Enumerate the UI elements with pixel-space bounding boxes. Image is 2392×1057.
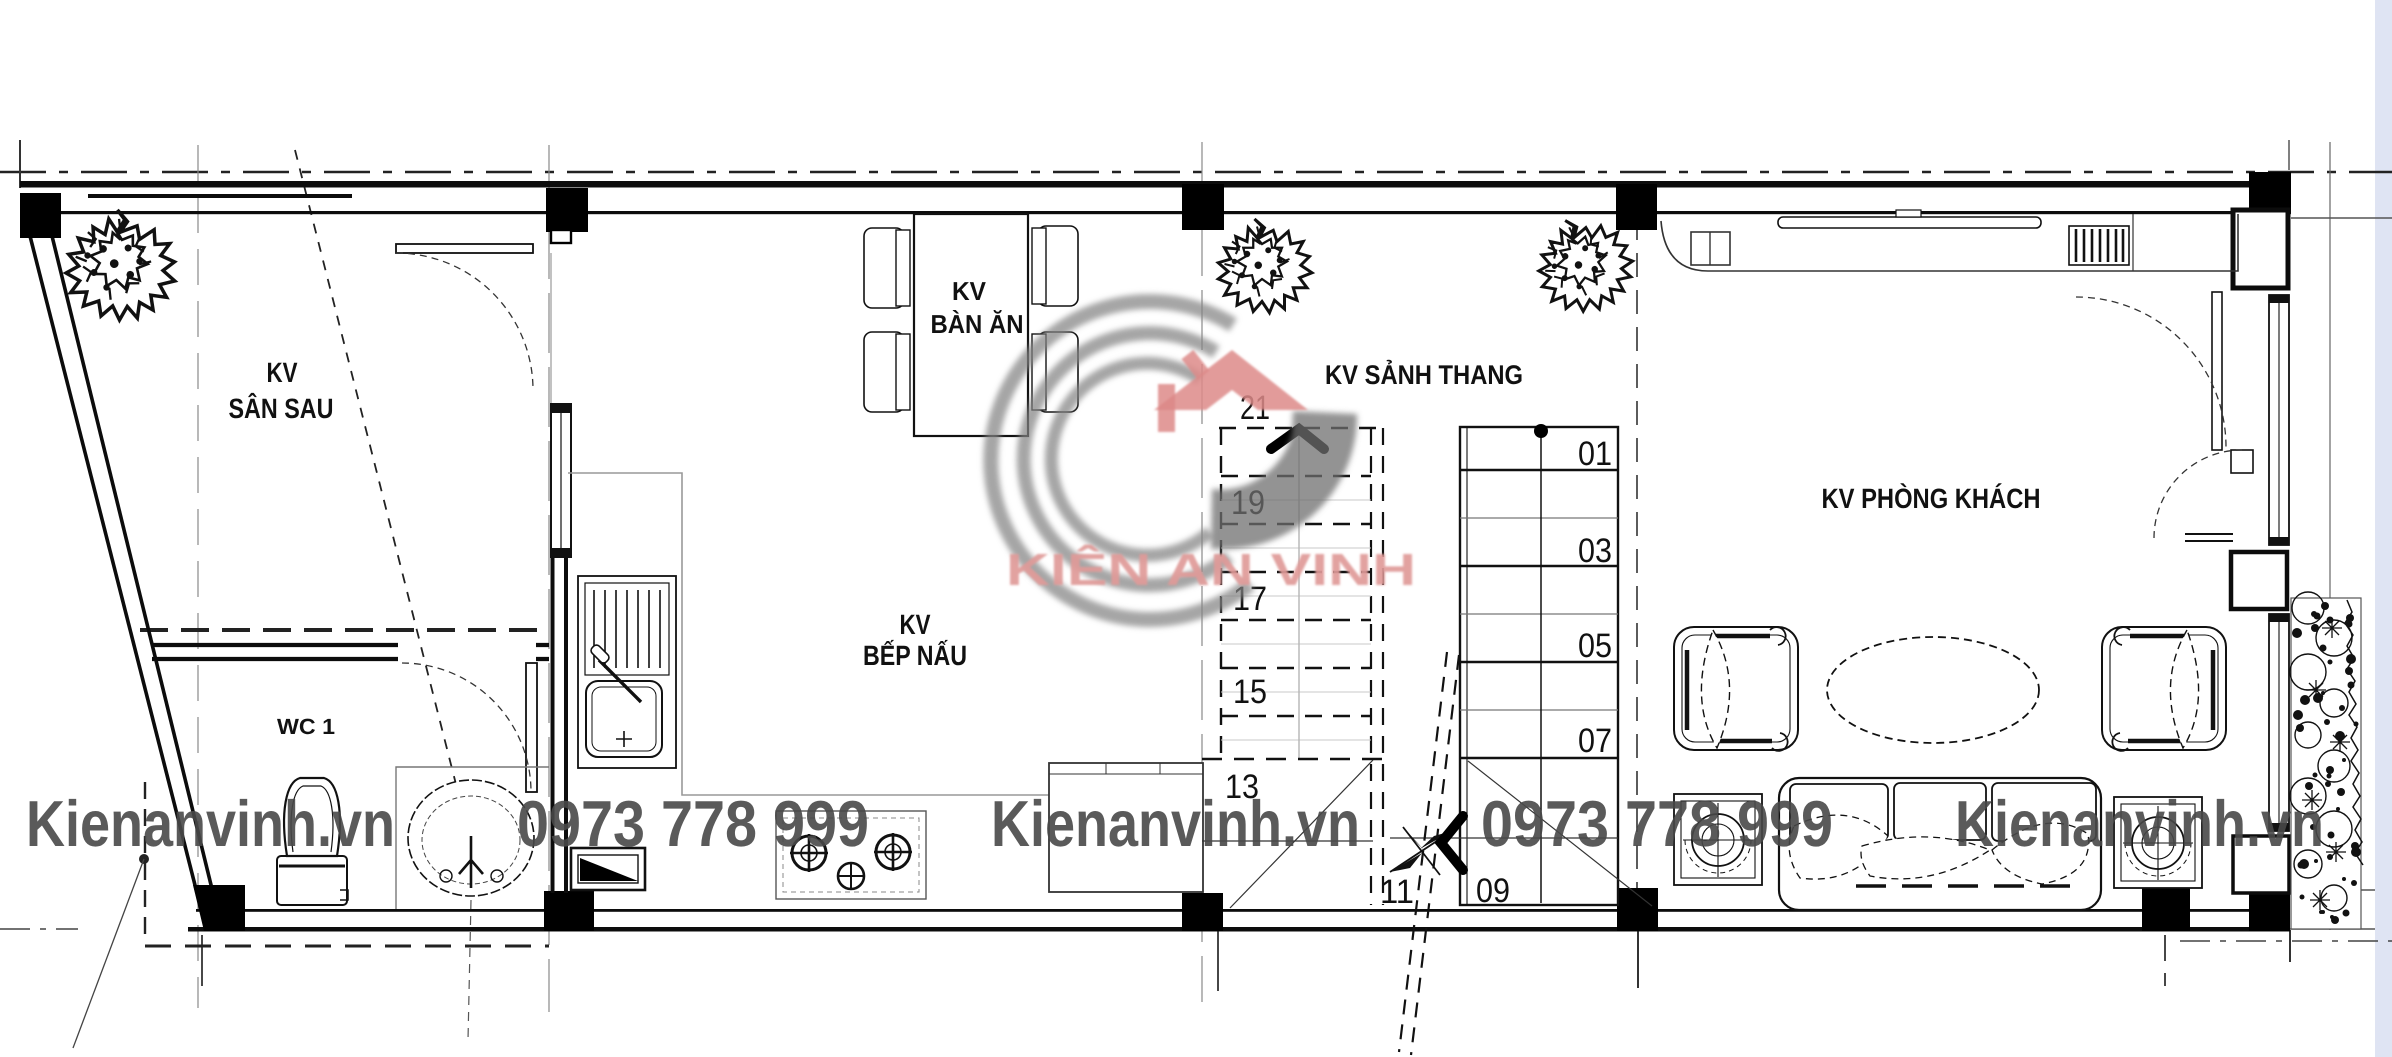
svg-text:KV PHÒNG KHÁCH: KV PHÒNG KHÁCH (1822, 483, 2041, 514)
svg-text:Kienanvinh.vn: Kienanvinh.vn (991, 787, 1360, 860)
svg-text:0973 778 999: 0973 778 999 (1481, 787, 1833, 860)
svg-text:BẾP NẤU: BẾP NẤU (863, 639, 967, 671)
svg-text:KV: KV (900, 609, 931, 640)
svg-text:KIÊN AN VINH: KIÊN AN VINH (1006, 544, 1416, 595)
svg-text:15: 15 (1233, 673, 1267, 711)
svg-text:0973 778 999: 0973 778 999 (517, 787, 869, 860)
svg-text:Kienanvinh.vn: Kienanvinh.vn (26, 787, 395, 860)
svg-text:BÀN ĂN: BÀN ĂN (931, 309, 1024, 339)
svg-text:KV SẢNH THANG: KV SẢNH THANG (1325, 359, 1523, 390)
svg-text:11: 11 (1380, 873, 1414, 911)
svg-text:07: 07 (1578, 722, 1612, 760)
svg-text:KV: KV (952, 276, 987, 306)
svg-text:01: 01 (1578, 435, 1612, 473)
svg-text:WC 1: WC 1 (277, 714, 335, 739)
svg-text:09: 09 (1476, 872, 1510, 910)
svg-text:05: 05 (1578, 627, 1612, 665)
svg-text:03: 03 (1578, 532, 1612, 570)
svg-text:Kienanvinh.vn: Kienanvinh.vn (1955, 787, 2324, 860)
svg-text:KV: KV (267, 357, 298, 388)
svg-text:SÂN SAU: SÂN SAU (229, 392, 334, 424)
